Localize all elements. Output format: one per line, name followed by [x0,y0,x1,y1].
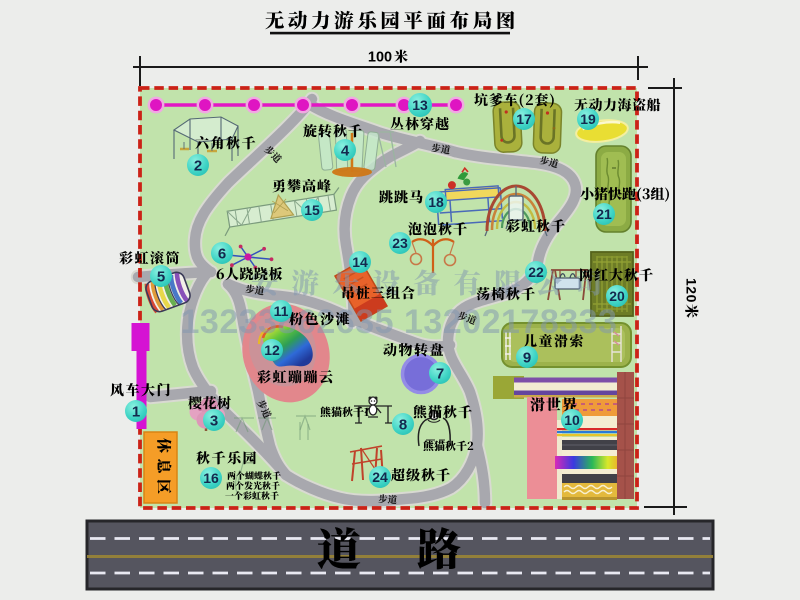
svg-text:1: 1 [132,403,140,420]
svg-text:120: 120 [684,278,700,303]
svg-text:21: 21 [596,206,612,222]
svg-text:3: 3 [210,412,218,429]
svg-text:15: 15 [304,202,320,218]
svg-text:13: 13 [412,97,428,113]
svg-text:9: 9 [523,349,531,366]
svg-text:14: 14 [352,254,368,270]
svg-text:5: 5 [157,268,165,285]
svg-text:100: 100 [368,50,392,66]
svg-text:19: 19 [580,111,596,127]
svg-text:10: 10 [564,412,580,428]
svg-text:24: 24 [372,469,388,485]
svg-text:2: 2 [194,157,202,174]
svg-text:22: 22 [528,264,544,280]
svg-text:20: 20 [609,288,625,304]
svg-text:6: 6 [218,245,226,262]
svg-text:13233862635 13202178333: 13233862635 13202178333 [181,303,618,341]
svg-text:11: 11 [274,303,289,319]
svg-text:7: 7 [436,365,444,382]
svg-text:17: 17 [516,111,532,127]
svg-text:8: 8 [399,416,407,433]
svg-text:18: 18 [428,194,444,210]
svg-text:12: 12 [264,342,280,358]
svg-text:16: 16 [203,470,219,486]
svg-text:4: 4 [341,142,350,159]
svg-text:23: 23 [392,235,408,251]
